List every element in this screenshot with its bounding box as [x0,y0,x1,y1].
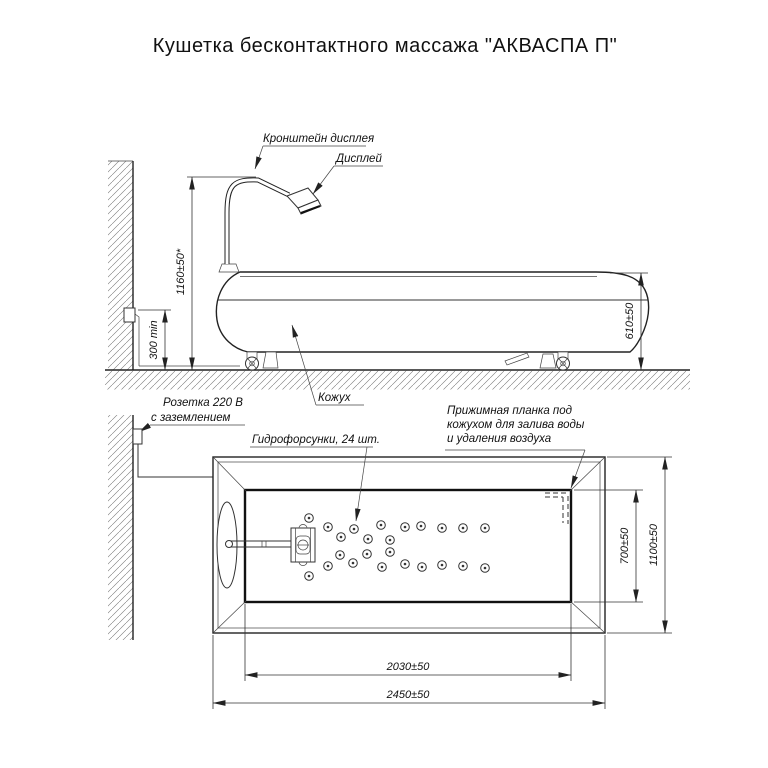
dim-text-2450: 2450±50 [386,689,431,701]
display-head [287,188,321,214]
svg-text:и удаления воздуха: и удаления воздуха [447,433,551,445]
dim-socket-height: 300 min [138,310,171,370]
bracket-right [505,353,529,365]
svg-text:Дисплей: Дисплей [334,153,382,165]
svg-text:кожухом для залива воды: кожухом для залива воды [447,419,585,431]
svg-text:Прижимная планка под: Прижимная планка под [447,405,572,417]
couch-plan-outline [213,457,605,633]
dim-text-700: 700±50 [619,527,631,565]
foot-left [263,352,278,368]
wall-section-side [108,161,133,370]
couch-legs [246,352,570,370]
couch-body [216,264,648,352]
wall-section-plan [108,415,133,640]
svg-text:с заземлением: с заземлением [151,412,231,424]
svg-text:Гидрофорсунки, 24 шт.: Гидрофорсунки, 24 шт. [252,434,380,446]
arm-mount [219,264,239,272]
wall-socket-plan [133,429,213,477]
side-view: 1160±50* 300 min 610±50 Кронштейн диспле… [105,133,690,432]
svg-text:Кожух: Кожух [318,392,352,404]
dim-text-2030: 2030±50 [386,661,431,673]
display-bracket-arm [227,180,289,264]
floor-section [105,370,690,390]
drawing-sheet: Кушетка бесконтактного массажа "АКВАСПА … [0,0,768,768]
foot-right [540,354,556,368]
dim-text-300min: 300 min [148,320,160,359]
svg-text:Розетка 220 В: Розетка 220 В [163,397,243,409]
dim-text-1100: 1100±50 [648,523,660,566]
dim-text-610: 610±50 [624,302,636,340]
svg-text:Кронштейн дисплея: Кронштейн дисплея [263,133,374,145]
label-display: Дисплей [313,153,383,194]
technical-drawing: Кушетка бесконтактного массажа "АКВАСПА … [0,0,768,768]
dim-text-1160: 1160±50* [175,248,187,295]
dim-overall-width: 1100±50 [607,457,672,633]
label-socket: Розетка 220 В с заземлением [139,397,245,432]
top-view: Гидрофорсунки, 24 шт. Прижимная планка п… [108,405,672,709]
drawing-title: Кушетка бесконтактного массажа "АКВАСПА … [153,35,618,57]
